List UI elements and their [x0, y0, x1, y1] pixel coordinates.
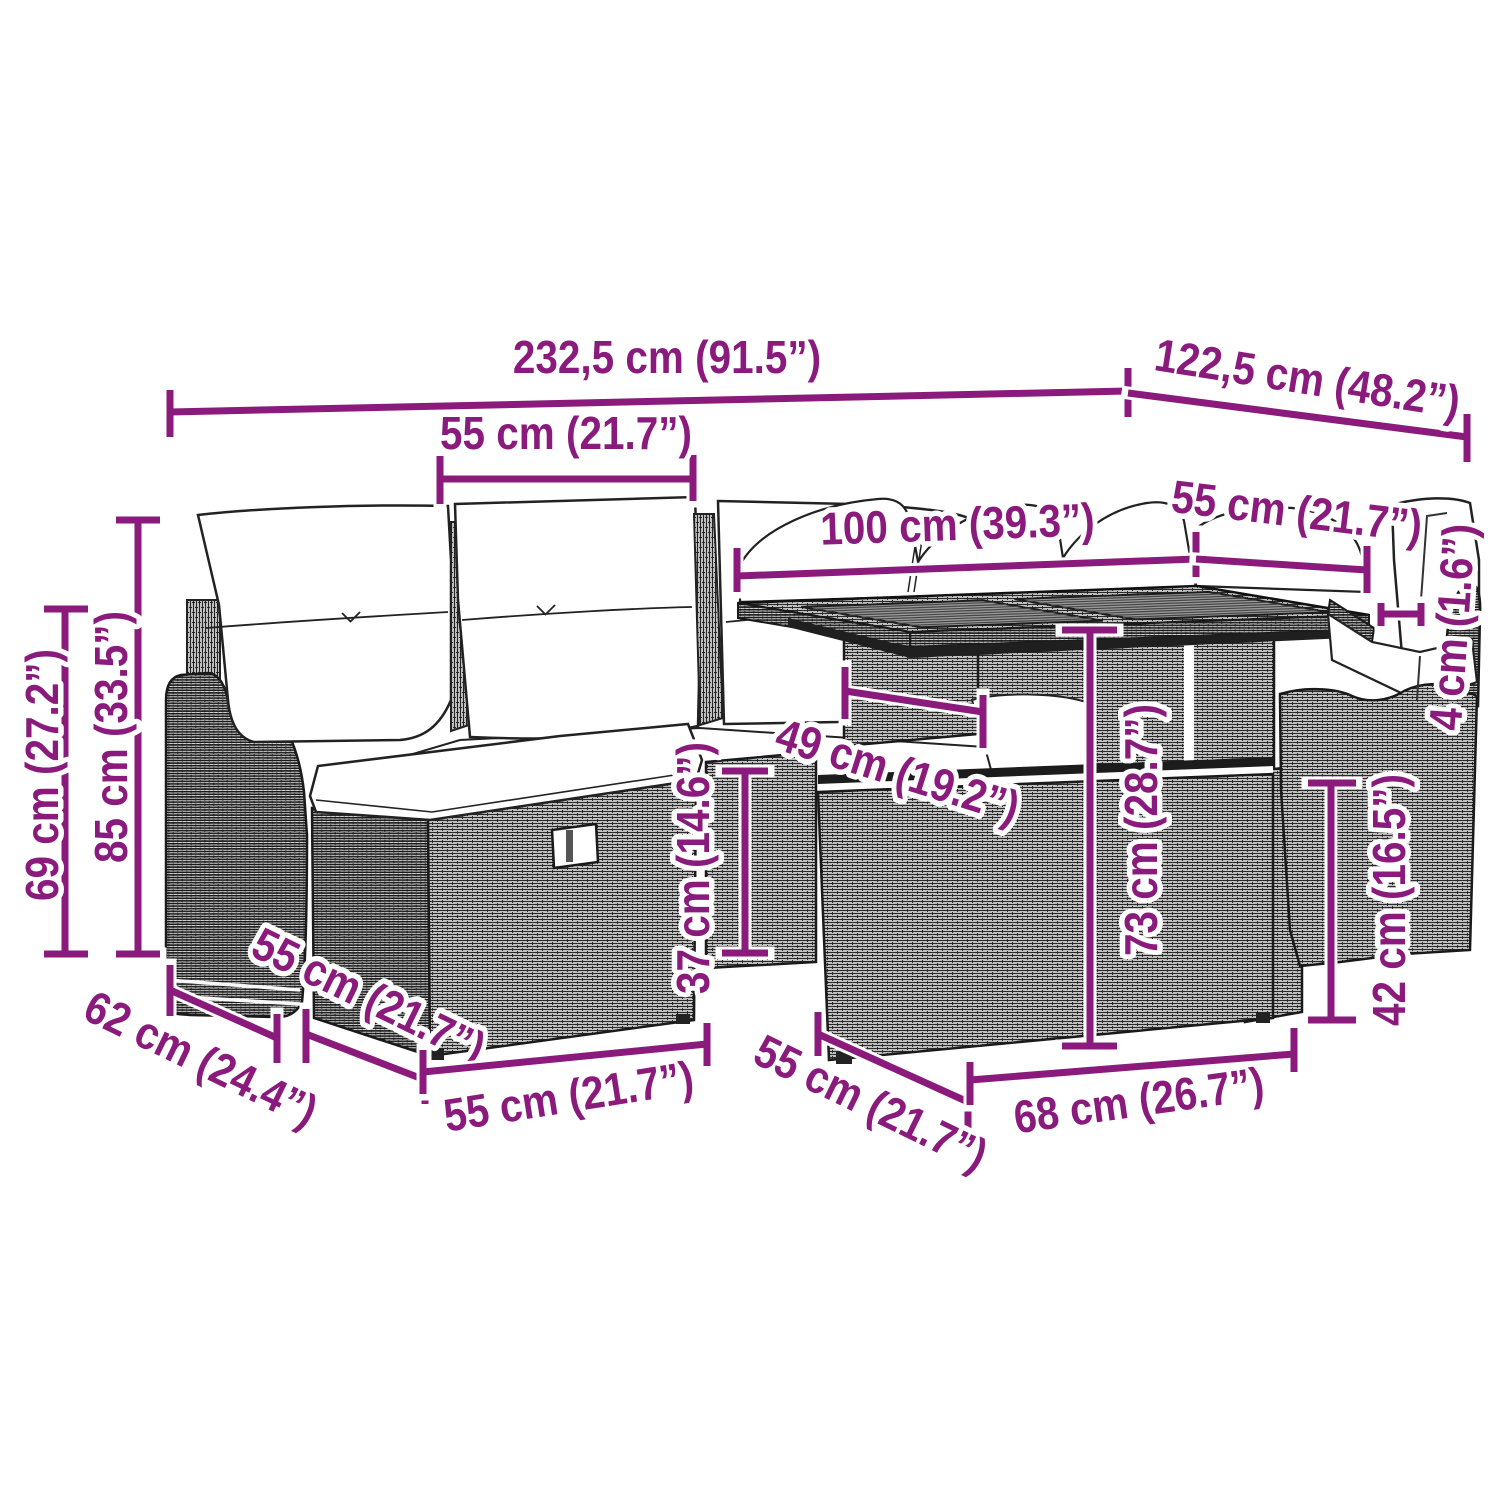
svg-text:232,5 cm (91.5”): 232,5 cm (91.5”) [513, 333, 821, 384]
svg-text:85 cm (33.5”): 85 cm (33.5”) [87, 611, 138, 863]
svg-text:37 cm (14.6”): 37 cm (14.6”) [669, 742, 720, 994]
svg-text:55 cm (21.7”): 55 cm (21.7”) [440, 409, 692, 460]
svg-text:42 cm (16.5”): 42 cm (16.5”) [1365, 774, 1416, 1026]
svg-text:73 cm (28.7”): 73 cm (28.7”) [1117, 704, 1168, 956]
svg-text:100 cm (39.3”): 100 cm (39.3”) [819, 495, 1095, 556]
svg-text:69 cm (27.2”): 69 cm (27.2”) [18, 649, 69, 901]
